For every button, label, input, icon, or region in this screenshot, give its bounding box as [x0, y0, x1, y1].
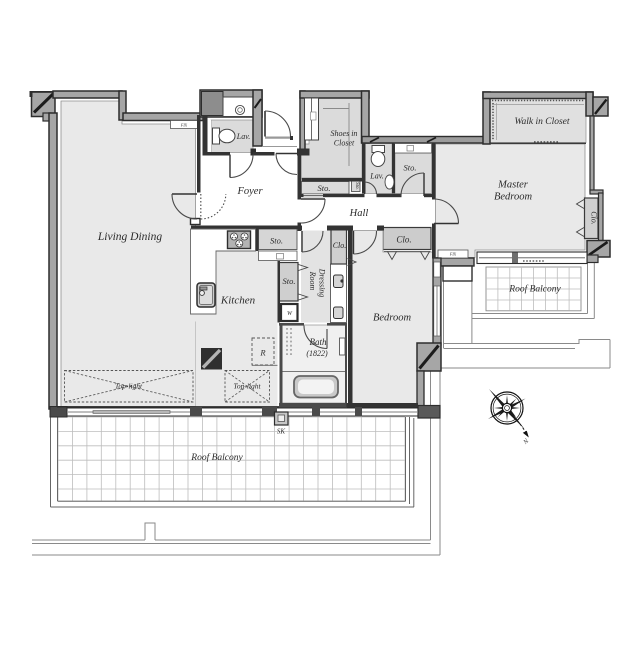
svg-text:Bedroom: Bedroom [494, 192, 533, 203]
svg-text:SK: SK [277, 428, 286, 436]
svg-text:Kitchen: Kitchen [220, 295, 256, 307]
svg-text:Clo.: Clo. [333, 241, 347, 250]
svg-text:Bedroom: Bedroom [373, 313, 412, 324]
svg-text:Hall: Hall [349, 208, 369, 219]
svg-text:Sto.: Sto. [354, 182, 359, 190]
svg-text:Roof Balcony: Roof Balcony [190, 452, 243, 463]
svg-text:Walk in Closet: Walk in Closet [514, 117, 569, 127]
svg-text:Top-light: Top-light [115, 382, 143, 391]
svg-text:Clo.: Clo. [396, 235, 411, 245]
svg-text:Lav.: Lav. [236, 132, 250, 141]
svg-text:Sto.: Sto. [404, 163, 417, 173]
svg-text:Living Dining: Living Dining [97, 231, 162, 243]
svg-text:R: R [259, 348, 266, 358]
svg-text:Closet: Closet [334, 139, 355, 148]
svg-text:Clo.: Clo. [590, 211, 599, 225]
svg-text:(1822): (1822) [306, 349, 328, 358]
svg-text:Sto.: Sto. [270, 236, 283, 246]
svg-text:Room: Room [308, 271, 317, 291]
svg-text:Lav.: Lav. [369, 172, 383, 181]
svg-text:Sto.: Sto. [318, 183, 331, 193]
svg-text:Shoes in: Shoes in [331, 129, 358, 138]
svg-text:Master: Master [497, 180, 529, 191]
svg-text:Top-light: Top-light [233, 382, 261, 391]
svg-text:Roof Balcony: Roof Balcony [508, 284, 561, 295]
svg-text:Bath: Bath [310, 337, 327, 347]
svg-text:Foyer: Foyer [236, 186, 263, 197]
svg-text:FIX: FIX [180, 122, 188, 127]
svg-text:Dressing: Dressing [318, 268, 327, 298]
svg-text:Sto.: Sto. [283, 276, 296, 286]
svg-text:FIX: FIX [449, 252, 457, 257]
